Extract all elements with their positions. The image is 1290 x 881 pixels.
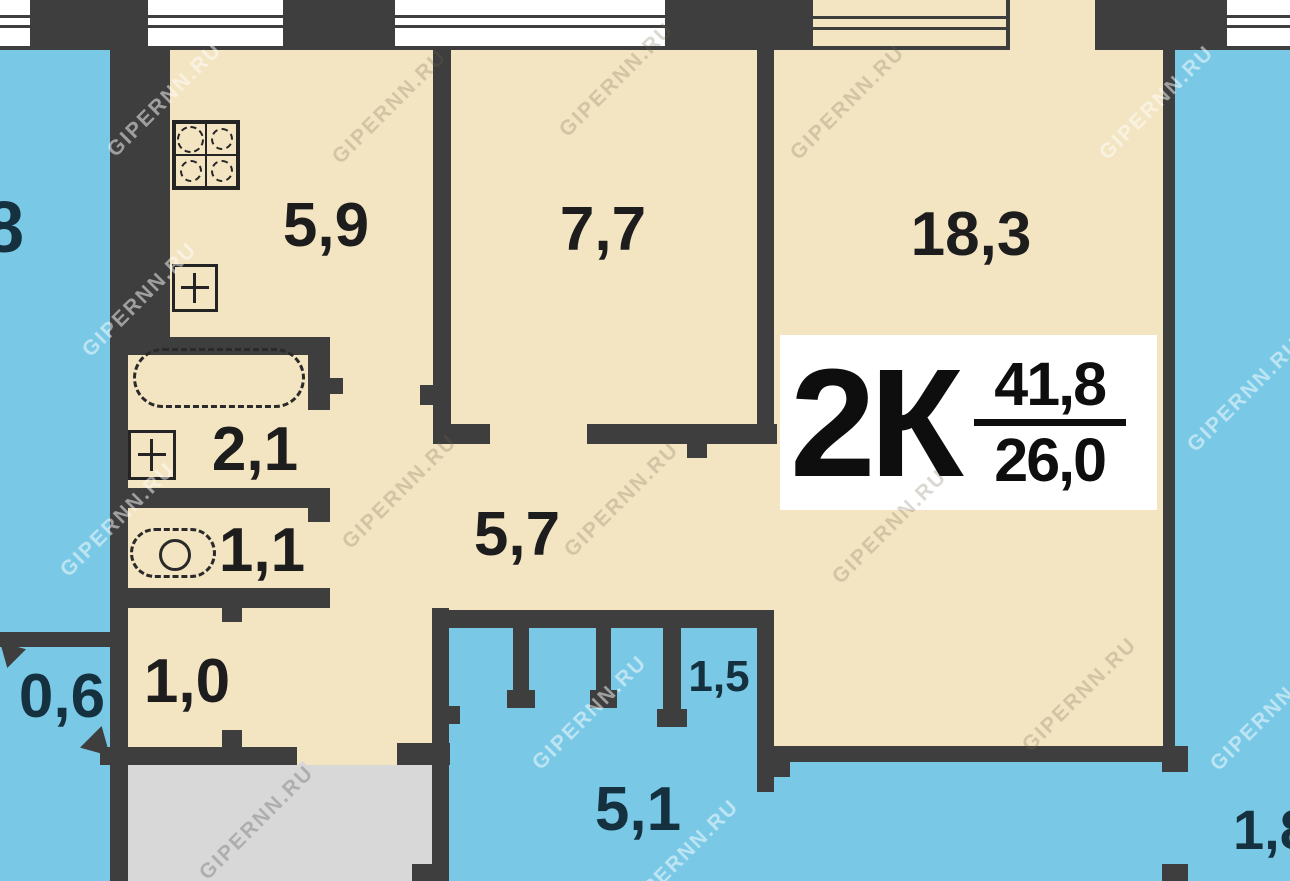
wall-entry-bottom (100, 747, 297, 765)
window-glass-line (395, 25, 665, 28)
wall-stub-bottom-right (1162, 864, 1188, 881)
wall-toilet-bottom (110, 588, 330, 608)
room-label-hallway: 5,7 (474, 504, 560, 566)
watermark: GIPERNN.RU (528, 651, 652, 775)
balcony-post-3 (663, 628, 681, 709)
wall-kitchen-door-nub (420, 385, 433, 405)
toilet-icon (130, 528, 216, 578)
wall-rooms-divider (757, 50, 774, 424)
window-glass-line (148, 15, 283, 18)
room-small-window-symbol (395, 0, 665, 50)
window-symbol (0, 0, 30, 50)
total-area-value: 41,8 (974, 354, 1126, 426)
balcony-post-3-foot (657, 709, 687, 727)
room-label-neighbor-left: 8 (0, 192, 24, 264)
burner-icon (180, 160, 202, 182)
window-sill-line (0, 46, 30, 50)
window-sill-line (1227, 46, 1290, 50)
balcony-sill-nub (449, 706, 460, 724)
living-area-value: 26,0 (974, 426, 1126, 491)
burner-icon (177, 126, 204, 153)
wall-stub-bottom-left (412, 864, 449, 881)
wall-entry-door-jamb-bottom (222, 730, 242, 747)
window-glass-line (813, 16, 1006, 19)
wall-room-small-door-nub (687, 444, 707, 458)
watermark: GIPERNN.RU (1206, 652, 1290, 776)
burner-icon (211, 128, 233, 150)
area-fraction: 41,8 26,0 (974, 354, 1126, 491)
floor-plan: 5,9 7,7 18,3 2,1 1,1 5,7 1,0 0,6 1,5 5,1… (0, 0, 1290, 881)
wall-balcony-sill (432, 610, 773, 628)
window-glass-line (148, 25, 283, 28)
wall-room-large-bottom (757, 746, 1175, 762)
room-label-small-room: 7,7 (560, 199, 646, 261)
room-label-balcony-closet: 1,5 (688, 655, 749, 699)
wall-balcony-left (432, 608, 449, 881)
wall-bath-door-jamb (308, 337, 330, 410)
room-label-neighbor-right: 1,8 (1233, 802, 1290, 858)
bathtub-icon (133, 348, 305, 408)
room-label-entry: 1,0 (144, 651, 230, 713)
balcony-post-1-foot (507, 690, 535, 708)
wall-neighbor-divider (0, 632, 112, 647)
watermark: GIPERNN.RU (1183, 333, 1290, 457)
stove-cell (175, 155, 206, 187)
neighbor-window-symbol (1227, 0, 1290, 50)
hallway-floor (433, 337, 774, 610)
window-glass-line (1227, 25, 1290, 28)
stove-cell (206, 155, 237, 187)
top-gap-floor (1010, 0, 1095, 50)
room-label-bathroom: 2,1 (212, 419, 298, 481)
stove-cell (175, 123, 206, 155)
wall-room-large-corner-left (757, 746, 790, 777)
window-glass-line (0, 25, 30, 28)
wall-top-1 (30, 0, 148, 50)
window-sill-line (813, 46, 1006, 50)
stove-cell (206, 123, 237, 155)
room-label-neighbor-balcony: 0,6 (19, 666, 105, 728)
wall-room-small-bottom-right (587, 424, 777, 444)
wall-kitchen-room (433, 50, 451, 444)
window-glass-line (0, 15, 30, 18)
room-label-large-room: 18,3 (911, 204, 1032, 266)
area-badge: 2К 41,8 26,0 (780, 335, 1157, 510)
window-glass-line (1227, 15, 1290, 18)
wall-top-4 (1095, 0, 1227, 50)
room-label-kitchen: 5,9 (283, 195, 369, 257)
room-label-toilet: 1,1 (219, 520, 305, 582)
burner-icon (211, 160, 233, 182)
wall-bath-door-nub (330, 378, 343, 394)
stove-icon (172, 120, 240, 190)
room-large-window-symbol (809, 0, 1010, 50)
window-glass-line (395, 15, 665, 18)
wall-toilet-bottom-cap (307, 588, 330, 608)
wall-top-3 (665, 0, 809, 50)
room-label-balcony: 5,1 (595, 779, 681, 841)
wall-bath-toilet-cap (308, 488, 330, 522)
wall-room-large-corner-right (1162, 746, 1188, 772)
wall-top-2 (283, 0, 395, 50)
wall-room-large-right (1163, 50, 1175, 746)
window-glass-line (813, 27, 1006, 30)
wall-entry-door-jamb-top (222, 608, 242, 622)
